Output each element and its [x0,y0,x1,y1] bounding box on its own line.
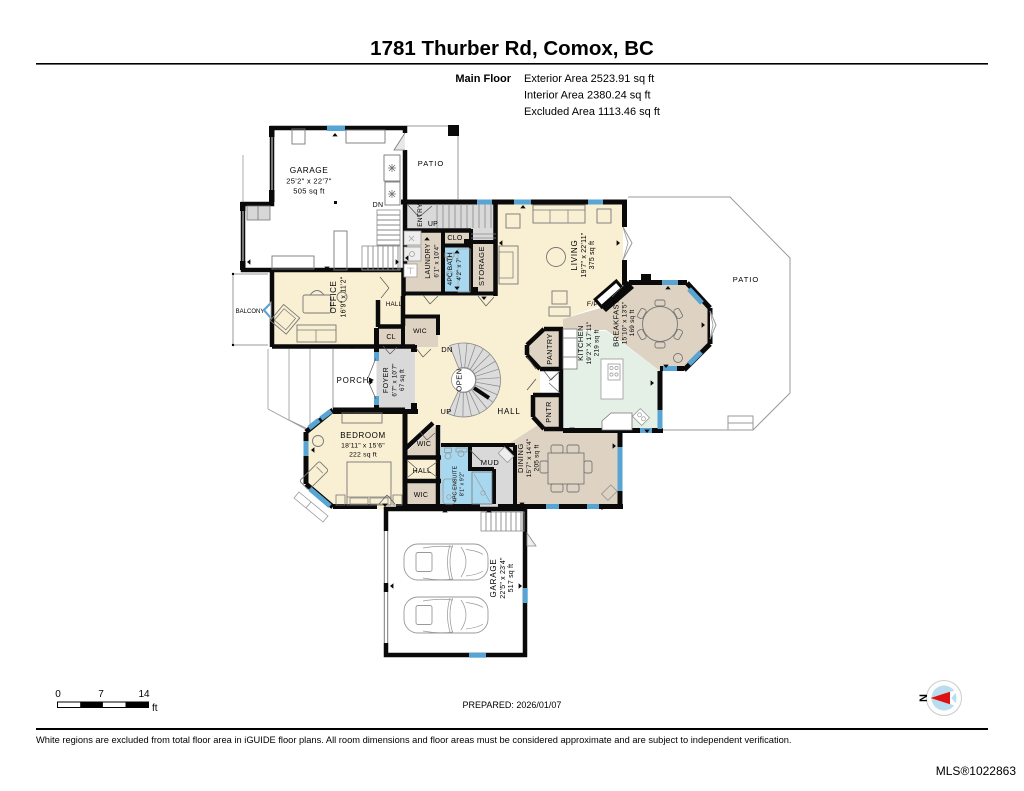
svg-text:25’2" x 22’7": 25’2" x 22’7" [286,177,332,186]
svg-text:18’11" x 15’6": 18’11" x 15’6" [341,443,385,450]
svg-text:OFFICE: OFFICE [329,281,338,314]
svg-text:375 sq ft: 375 sq ft [589,241,596,270]
svg-text:19’2" X 17’11": 19’2" X 17’11" [586,321,593,365]
svg-text:UP: UP [440,407,451,416]
svg-text:505 sq ft: 505 sq ft [293,187,325,196]
svg-text:KITCHEN: KITCHEN [576,325,585,361]
svg-text:219 sq ft: 219 sq ft [594,330,601,357]
svg-text:169 sq ft: 169 sq ft [629,310,636,337]
svg-text:PREPARED: 2026/01/07: PREPARED: 2026/01/07 [463,700,562,710]
svg-text:CLO: CLO [447,235,463,242]
svg-text:14: 14 [138,689,150,700]
svg-text:F/P: F/P [587,301,598,308]
svg-text:GARAGE: GARAGE [290,165,329,175]
svg-text:205 sq ft: 205 sq ft [534,445,541,472]
svg-text:15’7" x 14’4": 15’7" x 14’4" [526,438,533,477]
svg-text:HALL: HALL [386,301,403,308]
svg-text:ENTRY: ENTRY [417,203,424,227]
svg-text:HALL: HALL [413,468,432,475]
svg-text:CL: CL [386,334,395,341]
svg-text:DINING: DINING [516,443,525,473]
svg-text:HALL: HALL [497,407,520,416]
svg-text:BALCONY: BALCONY [236,309,265,315]
svg-text:N: N [918,694,930,702]
svg-text:White regions are excluded fro: White regions are excluded from total fl… [36,735,792,745]
svg-text:Excluded Area 1113.46 sq ft: Excluded Area 1113.46 sq ft [524,106,660,118]
svg-text:4PC BATH: 4PC BATH [447,252,454,285]
svg-text:PATIO: PATIO [418,159,444,168]
svg-text:4’2" x 7’: 4’2" x 7’ [457,258,463,281]
svg-text:GARAGE: GARAGE [489,558,498,597]
svg-text:19’7" x 22’11": 19’7" x 22’11" [581,232,588,277]
svg-text:BEDROOM: BEDROOM [340,431,386,440]
svg-text:517 sq ft: 517 sq ft [508,564,515,593]
svg-text:PORCH: PORCH [337,376,370,385]
svg-text:PNTR: PNTR [544,401,553,423]
svg-text:Main Floor: Main Floor [455,73,511,85]
svg-text:PATIO: PATIO [733,275,759,284]
svg-text:67 sq ft: 67 sq ft [399,369,406,391]
svg-text:OPEN: OPEN [455,368,464,391]
svg-text:16’9" x 11’2": 16’9" x 11’2" [341,276,348,317]
svg-text:4PC ENSUITE: 4PC ENSUITE [453,465,459,502]
svg-text:ft: ft [152,703,158,714]
svg-text:0: 0 [55,689,61,700]
svg-text:Exterior Area 2523.91 sq ft: Exterior Area 2523.91 sq ft [524,73,654,85]
svg-text:MUD: MUD [481,458,500,467]
svg-text:8’1" x 9’2": 8’1" x 9’2" [460,472,466,496]
svg-text:PANTRY: PANTRY [545,333,554,365]
svg-text:WIC: WIC [413,328,427,335]
svg-text:WIC: WIC [417,441,432,448]
svg-text:LAUNDRY: LAUNDRY [425,243,432,278]
svg-text:WIC: WIC [414,492,429,499]
svg-text:1781 Thurber Rd, Comox, BC: 1781 Thurber Rd, Comox, BC [370,37,654,60]
svg-text:6’1" x 10’4": 6’1" x 10’4" [434,244,441,277]
svg-text:6’7" x 10’7": 6’7" x 10’7" [392,363,399,396]
svg-text:STORAGE: STORAGE [477,246,486,286]
svg-text:222 sq ft: 222 sq ft [349,452,377,459]
svg-text:DN: DN [373,202,384,209]
svg-text:7: 7 [98,689,104,700]
svg-text:BREAKFAST: BREAKFAST [612,299,621,347]
svg-text:FOYER: FOYER [383,367,390,393]
svg-text:MLS®1022863: MLS®1022863 [936,764,1017,778]
svg-text:Interior Area 2380.24 sq ft: Interior Area 2380.24 sq ft [524,90,651,102]
svg-text:LIVING: LIVING [570,239,579,270]
svg-text:DN: DN [441,345,452,354]
svg-text:15’10" x 13’5": 15’10" x 13’5" [622,301,629,344]
svg-text:22’5" x 23’4": 22’5" x 23’4" [500,557,507,599]
svg-text:UP: UP [428,221,438,228]
